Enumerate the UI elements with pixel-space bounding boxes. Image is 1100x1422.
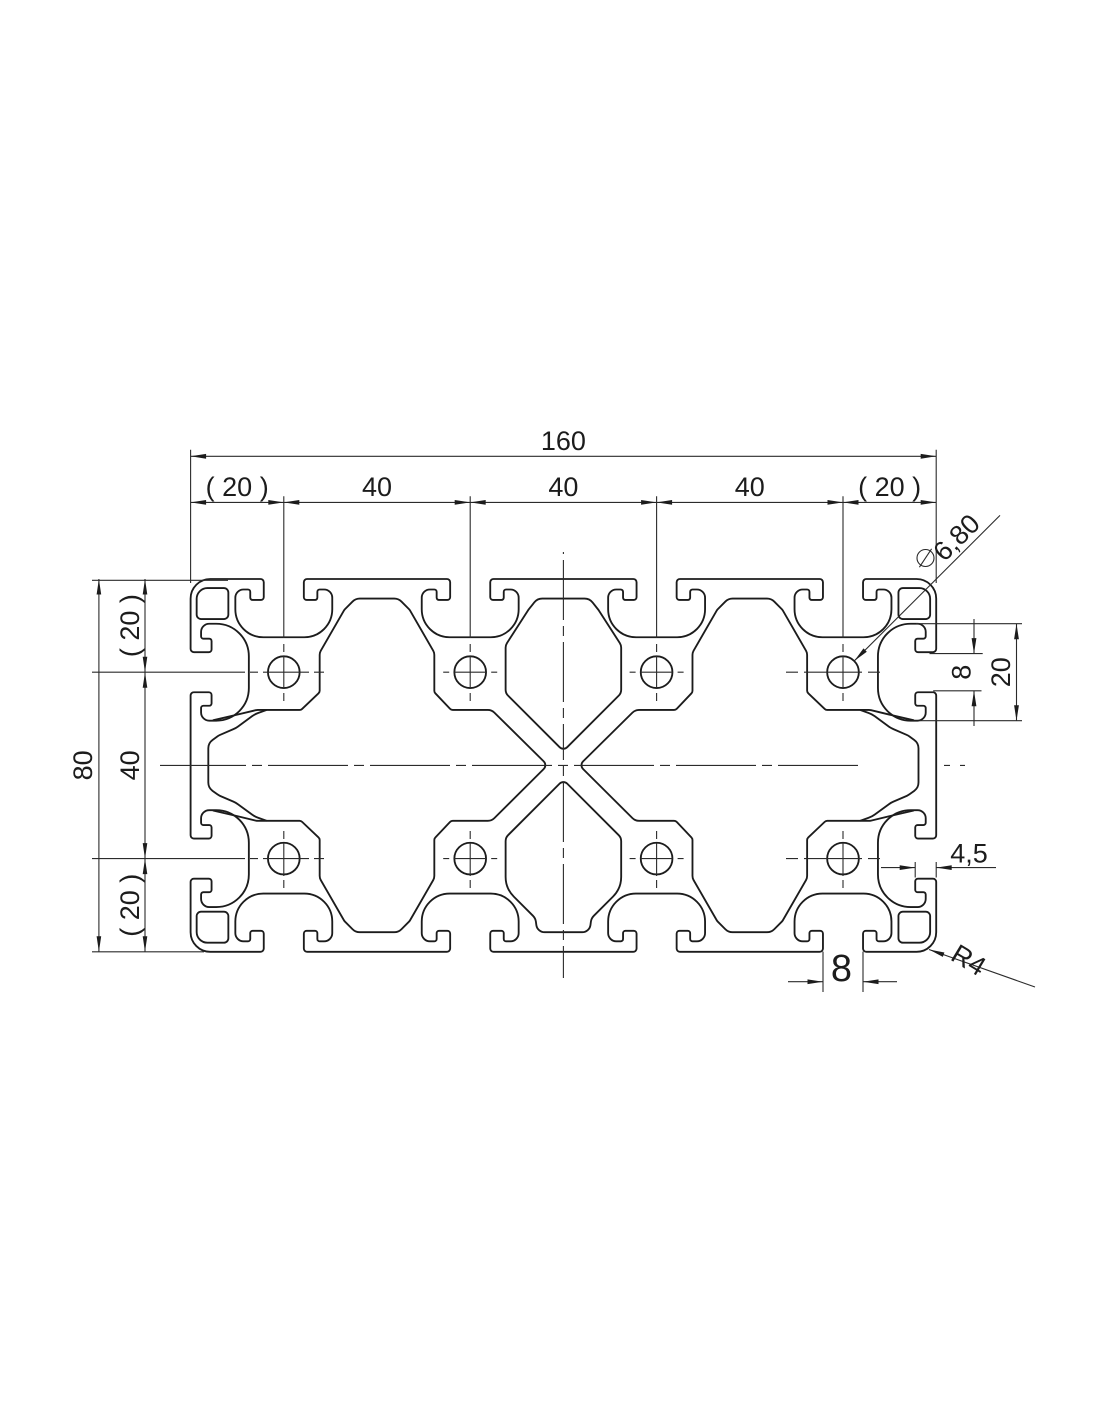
svg-text:( 20 ): ( 20 ) (206, 472, 269, 502)
svg-text:20: 20 (986, 657, 1016, 687)
svg-text:40: 40 (735, 472, 765, 502)
svg-text:80: 80 (68, 750, 98, 780)
svg-text:4,5: 4,5 (950, 839, 988, 869)
svg-text:( 20 ): ( 20 ) (858, 472, 921, 502)
svg-text:8: 8 (947, 665, 977, 680)
svg-text:40: 40 (115, 750, 145, 780)
svg-text:40: 40 (548, 472, 578, 502)
svg-text:8: 8 (831, 948, 852, 990)
svg-text:( 20 ): ( 20 ) (115, 594, 145, 657)
svg-text:( 20 ): ( 20 ) (115, 874, 145, 937)
svg-text:40: 40 (362, 472, 392, 502)
svg-text:160: 160 (541, 426, 586, 456)
